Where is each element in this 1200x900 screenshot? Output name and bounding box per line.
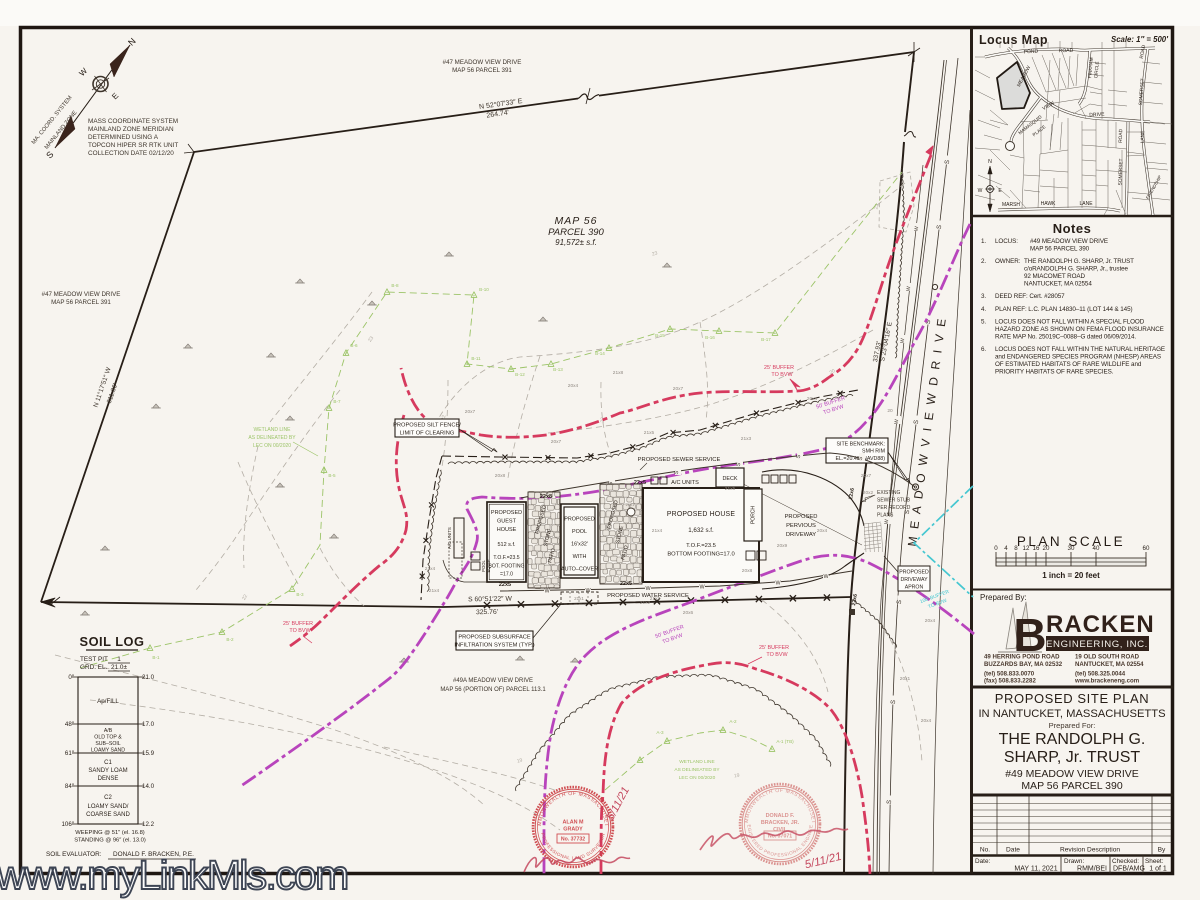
svg-text:PRIORITY HABITATS OF RARE SPEC: PRIORITY HABITATS OF RARE SPECIES. <box>995 369 1114 376</box>
svg-text:ALAN M: ALAN M <box>563 820 584 826</box>
svg-text:EXISTING: EXISTING <box>877 490 900 496</box>
svg-text:20: 20 <box>887 408 893 414</box>
svg-text:POND: POND <box>1024 48 1039 55</box>
svg-text:LOCUS DOES NOT FALL WITHIN THE: LOCUS DOES NOT FALL WITHIN THE NATURAL H… <box>995 346 1165 353</box>
svg-text:B-13: B-13 <box>553 367 563 372</box>
svg-text:BUZZARDS BAY, MA 02532: BUZZARDS BAY, MA 02532 <box>984 661 1063 668</box>
svg-text:22x8: 22x8 <box>540 494 552 500</box>
svg-text:THE RANDOLPH G.: THE RANDOLPH G. <box>999 731 1146 748</box>
svg-text:HAWK: HAWK <box>1041 201 1056 207</box>
svg-text:DENSE: DENSE <box>98 776 119 782</box>
svg-text:WETLAND LINE: WETLAND LINE <box>254 427 292 433</box>
svg-text:(tel) 508.833.0070: (tel) 508.833.0070 <box>984 671 1035 678</box>
svg-text:21x4: 21x4 <box>425 566 436 572</box>
svg-text:W: W <box>914 226 921 232</box>
svg-text:B-3: B-3 <box>296 592 304 597</box>
svg-text:1 inch = 20 feet: 1 inch = 20 feet <box>1042 571 1100 580</box>
svg-text:GUEST: GUEST <box>497 519 517 525</box>
svg-text:DECK: DECK <box>723 476 738 482</box>
svg-text:PROPOSED: PROPOSED <box>899 570 929 576</box>
svg-text:12.2: 12.2 <box>142 821 155 828</box>
svg-text:12: 12 <box>1023 545 1030 552</box>
svg-text:21x4: 21x4 <box>429 588 440 594</box>
svg-text:HAZARD ZONE AS SHOWN ON FEMA F: HAZARD ZONE AS SHOWN ON FEMA FLOOD INSUR… <box>995 326 1164 333</box>
svg-text:and ENDANGERED SPECIES PROGRAM: and ENDANGERED SPECIES PROGRAM (NHESP) A… <box>995 354 1161 361</box>
svg-text:DRIVEWAY: DRIVEWAY <box>900 577 928 583</box>
svg-text:PROPOSED HOUSE: PROPOSED HOUSE <box>667 511 735 518</box>
svg-text:21.0±: 21.0± <box>111 664 127 671</box>
svg-text:16'x32': 16'x32' <box>571 542 588 548</box>
svg-text:COLLECTION DATE 02/12/20: COLLECTION DATE 02/12/20 <box>88 150 174 157</box>
svg-text:INFILTRATION SYSTEM (TYP.): INFILTRATION SYSTEM (TYP.) <box>454 643 534 649</box>
svg-text:GRADY: GRADY <box>563 827 583 833</box>
svg-text:TO BVW: TO BVW <box>771 372 793 378</box>
svg-text:LEC ON 00/2020: LEC ON 00/2020 <box>679 775 716 781</box>
svg-text:PLANS: PLANS <box>877 513 894 519</box>
svg-text:21x3: 21x3 <box>741 436 752 442</box>
svg-text:PROPOSED: PROPOSED <box>491 510 522 516</box>
svg-text:BOT. FOOTING: BOT. FOOTING <box>489 564 525 570</box>
svg-text:8: 8 <box>1014 545 1018 552</box>
svg-text:MAP 56 PARCEL 390: MAP 56 PARCEL 390 <box>1021 780 1123 792</box>
svg-text:B-7: B-7 <box>333 399 341 404</box>
svg-text:1,632 s.f.: 1,632 s.f. <box>688 527 714 534</box>
svg-text:T.O.F.=23.5: T.O.F.=23.5 <box>686 543 716 549</box>
svg-text:21x1: 21x1 <box>574 596 584 601</box>
svg-text:20x1: 20x1 <box>900 676 911 682</box>
svg-text:c/oRANDOLPH G. SHARP, Jr., tru: c/oRANDOLPH G. SHARP, Jr., trustee <box>1024 266 1129 273</box>
svg-text:3.: 3. <box>981 293 986 300</box>
svg-text:25' BUFFER: 25' BUFFER <box>759 645 789 651</box>
svg-text:PORCH: PORCH <box>751 506 757 524</box>
svg-text:B-16: B-16 <box>705 335 715 340</box>
svg-text:RACKEN: RACKEN <box>1046 611 1155 638</box>
svg-text:Locus Map: Locus Map <box>979 33 1048 47</box>
svg-text:1.: 1. <box>981 238 986 245</box>
svg-text:20x6: 20x6 <box>683 610 694 616</box>
svg-text:Date:: Date: <box>975 858 990 865</box>
svg-text:B-17: B-17 <box>761 337 771 342</box>
svg-text:DRIVEWAY: DRIVEWAY <box>786 532 816 538</box>
svg-text:A/C UNITS: A/C UNITS <box>447 527 452 549</box>
svg-text:www.myLinkMls.com: www.myLinkMls.com <box>0 852 348 898</box>
svg-text:25' BUFFER: 25' BUFFER <box>764 365 794 371</box>
svg-text:PROPOSED SITE PLAN: PROPOSED SITE PLAN <box>995 691 1150 706</box>
svg-text:40: 40 <box>1093 545 1100 552</box>
svg-text:A-2: A-2 <box>729 719 737 724</box>
svg-text:DEED REF: Cert. #28057: DEED REF: Cert. #28057 <box>995 293 1065 300</box>
svg-text:OF ESTIMATED HABITATS OF RARE: OF ESTIMATED HABITATS OF RARE WILDLIFE a… <box>995 361 1142 368</box>
svg-text:LOAMY SAND/: LOAMY SAND/ <box>88 804 129 810</box>
svg-text:Checked:: Checked: <box>1112 858 1139 865</box>
svg-text:TOPCON HIPER SR RTK UNIT: TOPCON HIPER SR RTK UNIT <box>88 142 178 149</box>
svg-text:#49 MEADOW VIEW DRIVE: #49 MEADOW VIEW DRIVE <box>1030 238 1108 245</box>
svg-text:106″: 106″ <box>61 821 74 828</box>
svg-text:BOTTOM FOOTING=17.0: BOTTOM FOOTING=17.0 <box>667 552 734 558</box>
svg-text:T.O.F.=23.5: T.O.F.=23.5 <box>493 555 519 561</box>
svg-text:20x4: 20x4 <box>568 383 579 389</box>
svg-text:W: W <box>978 188 983 194</box>
svg-text:DRIVE: DRIVE <box>1089 112 1105 119</box>
svg-text:325.76': 325.76' <box>476 609 498 616</box>
svg-text:Prepared For:: Prepared For: <box>1049 721 1096 730</box>
svg-text:20x2: 20x2 <box>863 490 874 496</box>
svg-text:30: 30 <box>1068 545 1075 552</box>
svg-text:B-1: B-1 <box>152 655 160 660</box>
svg-text:#47 MEADOW VIEW DRIVE: #47 MEADOW VIEW DRIVE <box>443 59 522 66</box>
svg-text:Notes: Notes <box>1053 221 1092 236</box>
svg-text:48″: 48″ <box>65 721 75 728</box>
svg-text:C2: C2 <box>104 795 112 801</box>
svg-text:20: 20 <box>1043 545 1050 552</box>
svg-text:20x7: 20x7 <box>551 439 562 445</box>
svg-text:21x5: 21x5 <box>644 430 655 436</box>
svg-text:22x5: 22x5 <box>634 480 646 486</box>
svg-text:92 MIACOMET ROAD: 92 MIACOMET ROAD <box>1024 273 1085 280</box>
svg-text:B-10: B-10 <box>479 287 489 292</box>
svg-text:B-11: B-11 <box>471 356 481 361</box>
svg-text:SOIL LOG: SOIL LOG <box>80 634 145 649</box>
svg-text:Date: Date <box>1006 847 1020 854</box>
svg-text:S 60°51′22″ W: S 60°51′22″ W <box>468 595 513 604</box>
svg-text:49 HERRING POND ROAD: 49 HERRING POND ROAD <box>984 654 1060 661</box>
svg-text:TO BVW: TO BVW <box>766 652 788 658</box>
svg-text:PROPOSED: PROPOSED <box>785 514 818 520</box>
svg-text:LOAMY SAND: LOAMY SAND <box>91 748 125 754</box>
svg-text:SMH RIM: SMH RIM <box>862 449 885 455</box>
svg-text:LIMIT OF CLEARING: LIMIT OF CLEARING <box>400 431 455 437</box>
svg-text:PROPOSED WATER SERVICE: PROPOSED WATER SERVICE <box>607 593 689 599</box>
svg-text:MAP 56 (PORTION OF) PARCEL: MAP 56 (PORTION OF) PARCEL 113.1 <box>440 687 546 693</box>
svg-text:GRD. EL.: GRD. EL. <box>80 664 108 671</box>
svg-text:SITE BENCHMARK:: SITE BENCHMARK: <box>836 442 885 448</box>
svg-text:WEEPING @ 51″ (el. 16.8): WEEPING @ 51″ (el. 16.8) <box>75 830 145 836</box>
svg-text:#47 MEADOW VIEW DRIVE: #47 MEADOW VIEW DRIVE <box>42 291 121 298</box>
svg-text:B-6: B-6 <box>350 343 358 348</box>
svg-text:SANDY LOAM: SANDY LOAM <box>88 768 127 774</box>
svg-text:LANE: LANE <box>1079 201 1093 207</box>
svg-text:20x7: 20x7 <box>673 386 684 392</box>
svg-text:21x8: 21x8 <box>613 370 624 376</box>
svg-text:61″: 61″ <box>65 750 75 757</box>
svg-text:COARSE SAND: COARSE SAND <box>86 812 130 818</box>
svg-text:B-5: B-5 <box>328 473 336 478</box>
svg-text:MARSH: MARSH <box>1002 202 1020 208</box>
svg-text:MAP 56 PARCEL 390: MAP 56 PARCEL 390 <box>1030 246 1090 253</box>
svg-text:14.0: 14.0 <box>142 783 155 790</box>
svg-text:84″: 84″ <box>65 783 75 790</box>
svg-text:NANTUCKET, MA 02554: NANTUCKET, MA 02554 <box>1024 281 1092 288</box>
svg-text:APRON: APRON <box>905 585 924 591</box>
svg-text:20x9: 20x9 <box>777 543 788 549</box>
svg-text:4: 4 <box>1004 545 1008 552</box>
svg-text:www.brackeneng.com: www.brackeneng.com <box>1074 678 1140 685</box>
svg-text:B-2: B-2 <box>226 637 234 642</box>
svg-text:NANTUCKET, MA 02554: NANTUCKET, MA 02554 <box>1075 661 1144 668</box>
svg-text:MASS COORDINATE SYSTEM: MASS COORDINATE SYSTEM <box>88 118 178 125</box>
svg-text:20x4: 20x4 <box>817 528 828 534</box>
svg-text:THE RANDOLPH G. SHARP, Jr. TRU: THE RANDOLPH G. SHARP, Jr. TRUST <box>1024 258 1134 265</box>
svg-text:6.: 6. <box>981 346 986 353</box>
svg-text:ROAD: ROAD <box>1059 48 1074 55</box>
svg-text:Drawn:: Drawn: <box>1064 858 1084 865</box>
svg-text:OWNER:: OWNER: <box>995 258 1021 265</box>
svg-text:AS DELINEATED BY: AS DELINEATED BY <box>674 767 720 773</box>
svg-text:PROPOSED SUBSURFACE: PROPOSED SUBSURFACE <box>458 635 531 641</box>
svg-text:DONALD F.: DONALD F. <box>766 813 795 819</box>
svg-text:(fax) 508.833.2282: (fax) 508.833.2282 <box>984 678 1036 685</box>
svg-text:Revision Description: Revision Description <box>1060 847 1120 854</box>
svg-text:SUB–SOIL: SUB–SOIL <box>95 741 120 747</box>
svg-text:PROPOSED: PROPOSED <box>564 517 595 523</box>
svg-text:B-8: B-8 <box>391 283 399 288</box>
svg-text:A/B: A/B <box>104 728 113 734</box>
svg-text:Ap/FILL: Ap/FILL <box>97 698 119 705</box>
svg-text:16: 16 <box>1033 545 1040 552</box>
svg-text:DFB/AMG: DFB/AMG <box>1113 866 1145 873</box>
svg-text:WITH: WITH <box>573 554 587 560</box>
svg-text:OLD TOP &: OLD TOP & <box>94 735 122 741</box>
svg-text:TO BVW: TO BVW <box>289 628 311 634</box>
svg-text:No.: No. <box>980 847 990 854</box>
svg-text:PER RECORD: PER RECORD <box>877 505 911 511</box>
svg-text:20x7: 20x7 <box>861 473 872 479</box>
svg-text:Prepared By:: Prepared By: <box>980 593 1027 602</box>
svg-text:W: W <box>884 519 891 525</box>
svg-text:#49A MEADOW VIEW DRIVE: #49A MEADOW VIEW DRIVE <box>453 678 533 684</box>
svg-text:IN NANTUCKET, MASSACHUSETTS: IN NANTUCKET, MASSACHUSETTS <box>978 708 1165 720</box>
svg-text:60: 60 <box>1143 545 1150 552</box>
svg-text:MAP 56 PARCEL 391: MAP 56 PARCEL 391 <box>51 299 111 306</box>
svg-text:512 s.f.: 512 s.f. <box>497 542 516 548</box>
svg-text:N: N <box>988 159 992 165</box>
svg-text:20x4: 20x4 <box>807 396 818 402</box>
svg-text:A-3: A-3 <box>656 730 664 735</box>
svg-text:DETERMINED USING A: DETERMINED USING A <box>88 134 159 141</box>
svg-text:PROPOSED SILT FENCE/: PROPOSED SILT FENCE/ <box>393 423 461 429</box>
svg-text:22x5: 22x5 <box>499 582 511 588</box>
svg-text:MAY 11, 2021: MAY 11, 2021 <box>1014 866 1057 873</box>
svg-text:15.9: 15.9 <box>142 750 155 757</box>
svg-text:B-14: B-14 <box>595 351 605 356</box>
svg-text:=17.0: =17.0 <box>500 572 513 578</box>
svg-text:SEWER STUB: SEWER STUB <box>877 498 911 504</box>
svg-text:LANE: LANE <box>1140 131 1146 144</box>
svg-text:W: W <box>894 419 901 425</box>
svg-text:A-1 (TB): A-1 (TB) <box>776 739 794 744</box>
svg-text:21.0: 21.0 <box>142 674 155 681</box>
svg-text:A/C UNITS: A/C UNITS <box>671 480 699 486</box>
svg-text:LOCUS:: LOCUS: <box>995 238 1018 245</box>
svg-text:20x8: 20x8 <box>742 568 753 574</box>
svg-text:C1: C1 <box>104 760 112 766</box>
svg-text:1 of 1: 1 of 1 <box>1149 866 1167 873</box>
svg-text:(tel) 508.325.0044: (tel) 508.325.0044 <box>1075 671 1126 678</box>
svg-text:20x4: 20x4 <box>921 718 932 724</box>
svg-text:21x5: 21x5 <box>725 486 736 492</box>
svg-text:ENGINEERING, INC.: ENGINEERING, INC. <box>1046 639 1148 650</box>
svg-text:EQUIP: EQUIP <box>486 559 491 572</box>
svg-text:21x3: 21x3 <box>650 596 661 602</box>
svg-text:W: W <box>906 286 913 292</box>
svg-text:AS DELINEATED BY: AS DELINEATED BY <box>248 435 296 441</box>
svg-text:WETLAND LINE: WETLAND LINE <box>679 759 714 765</box>
svg-text:PARCEL 390: PARCEL 390 <box>548 227 604 238</box>
svg-text:21x4: 21x4 <box>652 528 663 534</box>
svg-text:By: By <box>1158 847 1166 854</box>
svg-text:91,572± s.f.: 91,572± s.f. <box>555 238 597 247</box>
svg-text:1: 1 <box>117 656 121 663</box>
svg-text:MAP 56 PARCEL 391: MAP 56 PARCEL 391 <box>452 67 512 74</box>
svg-text:0″: 0″ <box>68 674 74 681</box>
svg-text:RMM/BEI: RMM/BEI <box>1077 866 1107 873</box>
svg-text:POOL: POOL <box>572 529 587 535</box>
svg-text:SHARP, Jr. TRUST: SHARP, Jr. TRUST <box>1004 749 1141 766</box>
svg-text:25' BUFFER: 25' BUFFER <box>283 621 313 627</box>
svg-text:MAINLAND ZONE MERIDIAN: MAINLAND ZONE MERIDIAN <box>88 126 174 133</box>
svg-text:SOMERSET: SOMERSET <box>1118 158 1125 185</box>
svg-text:5.: 5. <box>981 319 986 326</box>
svg-text:HOUSE: HOUSE <box>497 527 517 533</box>
svg-text:0: 0 <box>994 545 998 552</box>
svg-text:#49 MEADOW VIEW DRIVE: #49 MEADOW VIEW DRIVE <box>1005 768 1139 780</box>
svg-text:2.: 2. <box>981 258 986 265</box>
svg-text:25x1: 25x1 <box>626 502 635 507</box>
svg-text:20x7: 20x7 <box>465 409 476 415</box>
svg-text:22x5: 22x5 <box>620 581 632 587</box>
svg-text:ROAD: ROAD <box>1118 128 1124 143</box>
svg-text:LOCUS DOES NOT FALL WITHIN A S: LOCUS DOES NOT FALL WITHIN A SPECIAL FLO… <box>995 319 1145 326</box>
svg-text:PERVIOUS: PERVIOUS <box>786 523 816 529</box>
svg-text:19 OLD SOUTH ROAD: 19 OLD SOUTH ROAD <box>1075 654 1140 661</box>
svg-text:MAP 56: MAP 56 <box>555 215 598 227</box>
svg-text:BRACKEN, JR.: BRACKEN, JR. <box>761 820 800 826</box>
svg-text:B-12: B-12 <box>515 372 525 377</box>
svg-text:TEST PIT: TEST PIT <box>80 656 108 663</box>
svg-text:AUTO–COVER: AUTO–COVER <box>561 567 598 573</box>
svg-text:STANDING @ 96″ (el. 13.0): STANDING @ 96″ (el. 13.0) <box>74 838 146 844</box>
svg-text:RATE MAP No. 25019C–0088–G dat: RATE MAP No. 25019C–0088–G dated 06/09/2… <box>995 334 1136 341</box>
svg-text:Sheet:: Sheet: <box>1145 858 1164 865</box>
svg-text:20x4: 20x4 <box>925 618 936 624</box>
svg-text:PLAN REF: L.C. PLAN 14830–11: PLAN REF: L.C. PLAN 14830–11 (LOT 144 & … <box>995 306 1132 313</box>
svg-text:4.: 4. <box>981 306 986 313</box>
svg-text:LEC ON 00/2020: LEC ON 00/2020 <box>253 443 291 449</box>
svg-text:PROPOSED SEWER SERVICE: PROPOSED SEWER SERVICE <box>638 457 721 463</box>
svg-text:20x8: 20x8 <box>495 473 506 479</box>
svg-text:17.0: 17.0 <box>142 721 155 728</box>
svg-text:B-15: B-15 <box>655 333 665 338</box>
svg-text:No. 37732: No. 37732 <box>561 837 585 843</box>
svg-text:W: W <box>900 338 907 344</box>
svg-text:Scale: 1″ = 500′: Scale: 1″ = 500′ <box>1111 35 1169 44</box>
